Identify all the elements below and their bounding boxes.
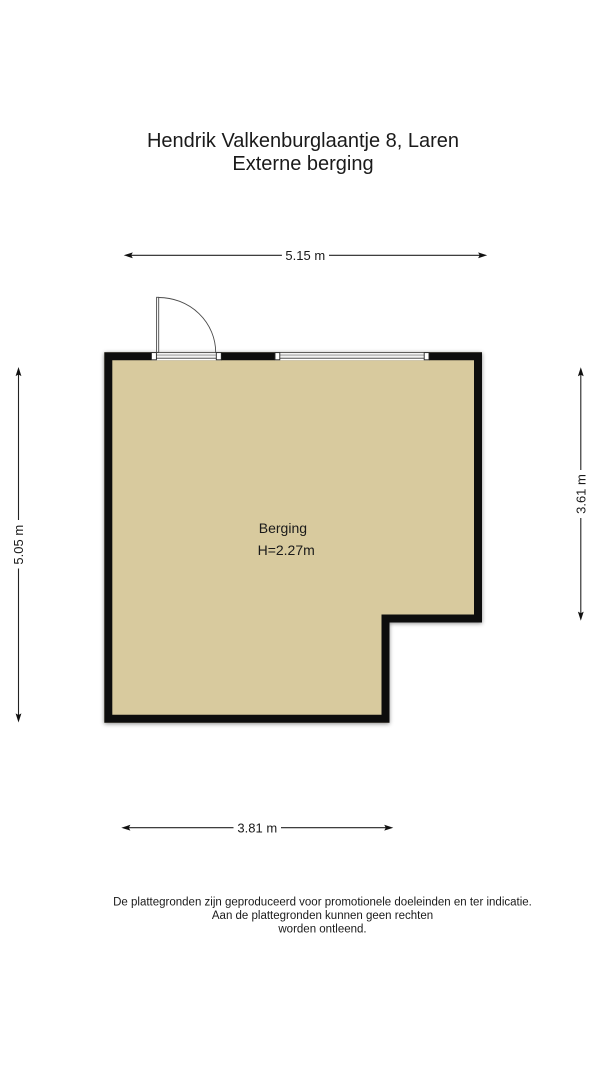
svg-text:De plattegronden zijn geproduc: De plattegronden zijn geproduceerd voor … [113,896,532,908]
svg-text:Hendrik Valkenburglaantje 8, L: Hendrik Valkenburglaantje 8, Laren [147,130,459,152]
svg-text:3.61 m: 3.61 m [573,474,588,514]
svg-text:3.81 m: 3.81 m [237,820,277,835]
svg-text:Aan de plattegronden kunnen ge: Aan de plattegronden kunnen geen rechten [212,910,433,922]
svg-text:Berging: Berging [259,520,307,536]
svg-text:worden ontleend.: worden ontleend. [277,923,366,935]
svg-text:5.05 m: 5.05 m [11,525,26,565]
svg-text:Externe berging: Externe berging [232,153,373,175]
svg-text:H=2.27m: H=2.27m [258,542,315,558]
svg-text:5.15 m: 5.15 m [285,248,325,263]
